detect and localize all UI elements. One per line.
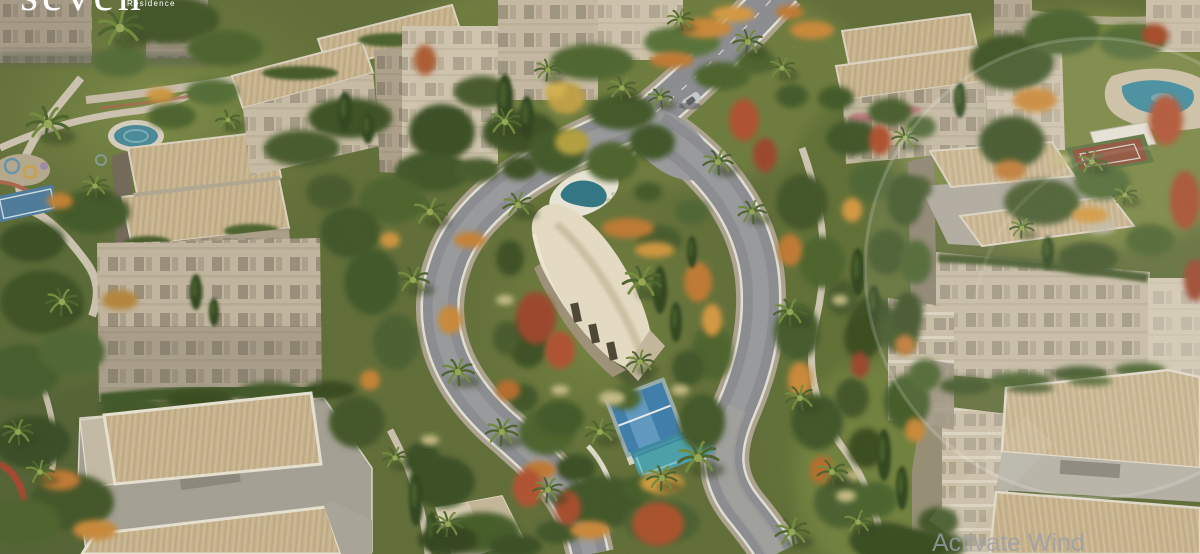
svg-text:Residence: Residence — [127, 0, 176, 8]
svg-text:Activate Wind: Activate Wind — [932, 529, 1085, 554]
